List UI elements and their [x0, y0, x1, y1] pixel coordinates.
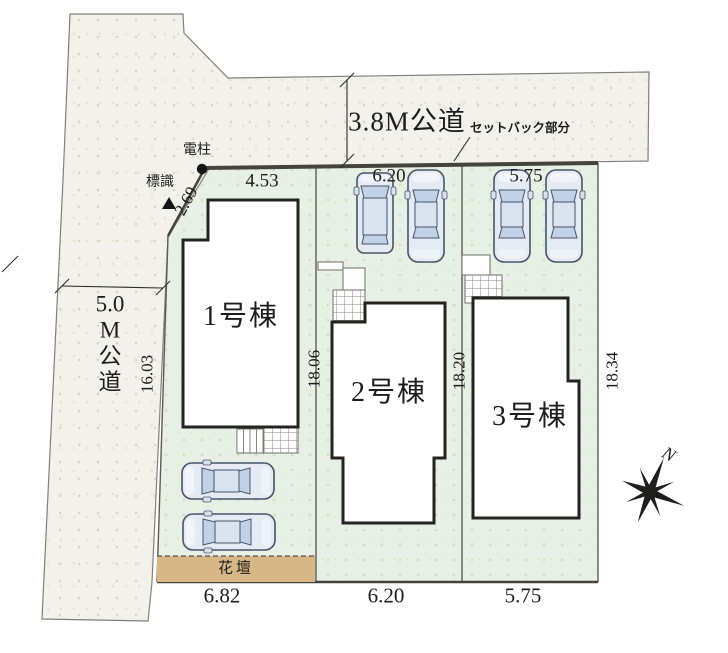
dim-lot2-top: 6.20	[372, 167, 405, 186]
dim-lot3-top: 5.75	[509, 167, 542, 186]
dim-lot3-frontage: 5.75	[505, 586, 542, 607]
lot2-name: 2号棟	[351, 379, 427, 407]
top-road-label: 3.8M公道	[348, 109, 466, 136]
car-lot1-rear	[183, 511, 275, 553]
left-road-label: 5.0 M 公 道	[96, 293, 125, 394]
dim-lot3-depth: 18.34	[604, 352, 621, 390]
dim-lot2-depth: 18.20	[451, 352, 468, 390]
dim-lot1-frontage: 6.82	[204, 586, 241, 607]
car-lot2-right	[405, 170, 447, 262]
utility-pole-label: 電柱	[183, 144, 211, 158]
sign-label: 標識	[146, 176, 174, 190]
lot3-name: 3号棟	[492, 403, 568, 431]
dim-lot1-top: 4.53	[245, 172, 278, 191]
left-road-char: 公	[99, 345, 122, 368]
porch-lot2	[318, 262, 365, 322]
car-lot1-front	[182, 460, 274, 502]
utility-pole-marker	[197, 164, 207, 174]
left-road-char: M	[100, 319, 120, 342]
dim-lot1-depth: 18.06	[306, 350, 323, 388]
setback-label: セットバック部分	[470, 122, 570, 135]
flower-bed-label: 花壇	[218, 562, 254, 577]
dim-road-edge: 16.03	[139, 355, 156, 393]
car-lot3-right	[543, 170, 585, 262]
building-2	[332, 303, 445, 523]
left-road-char: 5.0	[96, 293, 125, 316]
site-plan: 3.8M公道 セットバック部分 5.0 M 公 道 電柱 標識 4.53 6.2…	[0, 0, 728, 653]
left-road-char: 道	[99, 371, 122, 394]
lot1-name: 1号棟	[203, 303, 279, 331]
porch-lot1	[237, 428, 298, 453]
compass-icon	[610, 446, 698, 536]
porch-lot3	[462, 255, 502, 303]
dim-lot2-frontage: 6.20	[368, 586, 405, 607]
